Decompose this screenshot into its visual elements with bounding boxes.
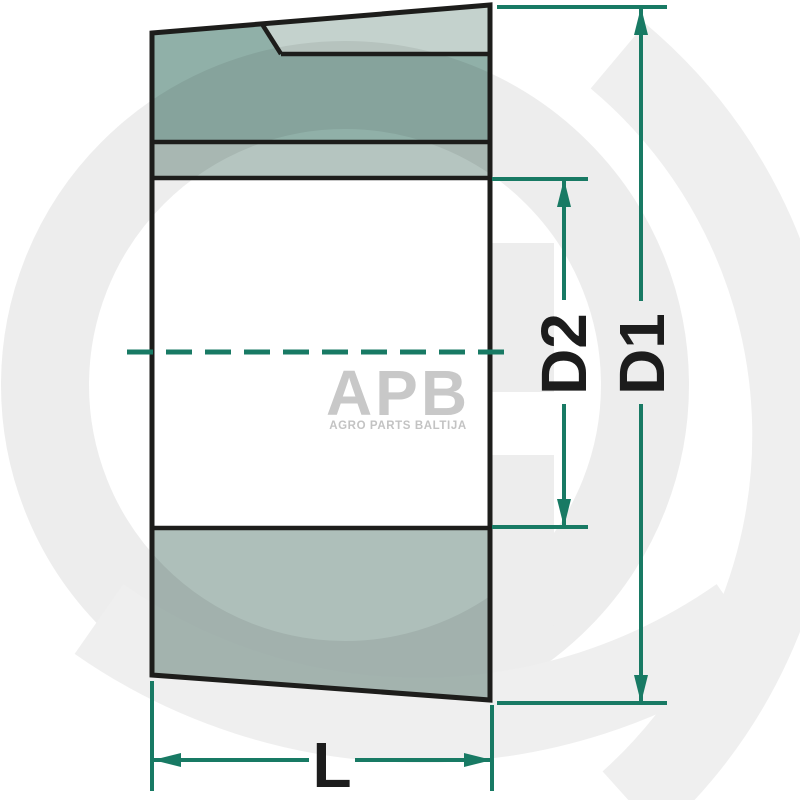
apb-logo-watermark: APB AGRO PARTS BALTIJA	[326, 357, 470, 432]
drawing-canvas: APB AGRO PARTS BALTIJA D2	[0, 0, 800, 800]
apb-logo-tagline: AGRO PARTS BALTIJA	[329, 420, 467, 432]
g-watermark-stem-lower	[491, 455, 554, 647]
l-label: L	[312, 729, 351, 800]
d1-label: D1	[606, 313, 678, 395]
bushing-technical-diagram: APB AGRO PARTS BALTIJA D2	[0, 0, 800, 800]
d2-label: D2	[528, 313, 600, 395]
apb-logo-text: APB	[326, 357, 470, 429]
